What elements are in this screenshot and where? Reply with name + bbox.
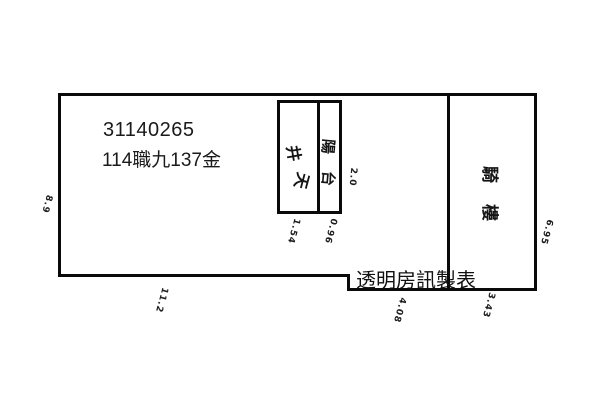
balcony-box-divider xyxy=(317,100,320,214)
lightwell-char-2: 天 xyxy=(289,170,316,192)
arcade-char-1: 騎 xyxy=(479,166,504,183)
dim-bottom-left: 11.2 xyxy=(153,286,169,314)
dim-below-arcade: 3.43 xyxy=(480,291,496,319)
outer-wall-left xyxy=(58,93,61,277)
balcony-box-right xyxy=(339,100,342,214)
dim-balcony: 0.96 xyxy=(322,217,338,245)
balcony-box-bottom xyxy=(277,211,342,214)
dim-balcony-side: 2.0 xyxy=(347,167,359,187)
dim-left-edge: 8.9 xyxy=(39,194,54,215)
dim-right-of-arcade: 6.95 xyxy=(538,218,554,246)
arcade-char-2: 樓 xyxy=(479,204,504,221)
parcel-label: 114職九137金 xyxy=(102,145,221,172)
floor-plan-canvas: 31140265 114職九137金 透明房訊製表 井 天 陽 台 騎 樓 8.… xyxy=(0,0,602,400)
dim-bottom-middle: 4.08 xyxy=(391,296,407,324)
balcony-box-top xyxy=(277,100,342,103)
watermark-label: 透明房訊製表 xyxy=(356,264,476,293)
outer-wall-bottom-left xyxy=(58,274,350,277)
plan-id-number: 31140265 xyxy=(103,119,195,142)
dim-lightwell: 1.54 xyxy=(285,217,301,245)
outer-wall-top xyxy=(58,93,537,96)
outer-wall-right xyxy=(534,93,537,291)
balcony-char-2: 台 xyxy=(317,170,339,187)
balcony-box-left xyxy=(277,100,280,214)
balcony-char-1: 陽 xyxy=(317,138,339,155)
lightwell-char-1: 井 xyxy=(282,143,308,163)
arcade-left-wall xyxy=(447,93,450,291)
